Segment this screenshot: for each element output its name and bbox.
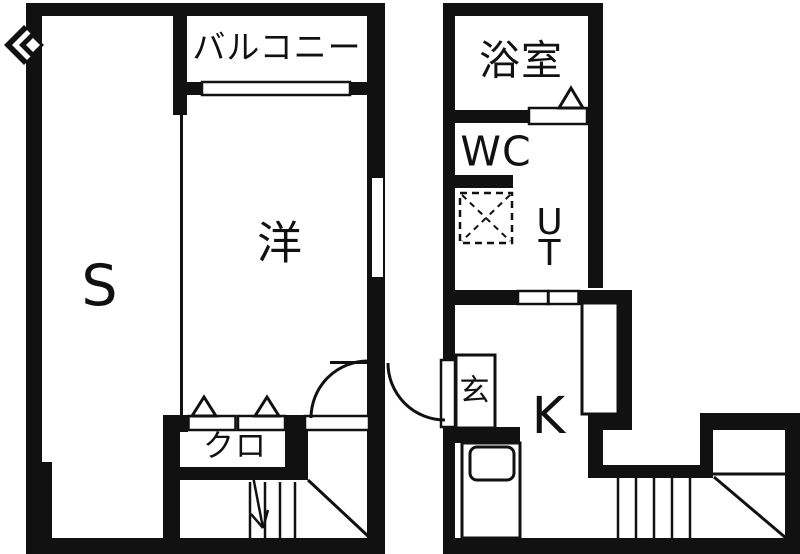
symbols xyxy=(4,25,786,538)
room-label-western-room: 洋 xyxy=(257,219,303,266)
wall-stair-tread-top xyxy=(588,465,712,478)
floor-plan: バルコニー S 洋 クロ 浴室 WC UT 玄 K xyxy=(0,0,800,554)
room-label-balcony: バルコニー xyxy=(192,31,361,66)
folding-door-triangle-closet-right xyxy=(255,397,279,416)
wall-left-unit-west-upper xyxy=(26,3,42,462)
wall-left-unit-bottom xyxy=(26,538,385,554)
room-label-closet: クロ xyxy=(203,431,267,464)
folding-door-triangle-closet-left xyxy=(192,397,216,416)
partition-s-western xyxy=(180,115,183,417)
wall-balcony-divider xyxy=(173,3,187,115)
wall-bath-bottom xyxy=(443,110,530,123)
wall-closet-bottom xyxy=(163,467,308,480)
wall-balcony-sill-left xyxy=(187,82,202,95)
wall-wc-bottom xyxy=(443,175,513,188)
entrance-door-leaf xyxy=(441,360,455,427)
kitchen-sink xyxy=(470,447,514,480)
room-label-utility: UT xyxy=(532,207,568,269)
wall-right-unit-top xyxy=(443,3,603,16)
western-room-window xyxy=(372,178,383,277)
bath-sliding-door xyxy=(529,108,587,124)
ut-sliding-door-right xyxy=(549,291,579,304)
wall-right-unit-east-upper xyxy=(588,3,603,288)
room-label-storage: S xyxy=(81,257,118,317)
room-label-entrance: 玄 xyxy=(460,375,491,407)
wall-stair-step xyxy=(588,413,632,430)
room-label-kitchen: K xyxy=(532,390,566,444)
western-room-door-swing-arc xyxy=(311,361,368,418)
balcony-window xyxy=(202,82,350,95)
wall-left-unit-top xyxy=(26,3,385,16)
wall-landing-east xyxy=(785,413,800,554)
folding-door-triangle-bath xyxy=(559,88,583,108)
walls xyxy=(26,3,800,554)
room-label-toilet: WC xyxy=(460,130,531,173)
entrance-door-swing-arc xyxy=(388,363,445,420)
wall-balcony-sill-right xyxy=(350,82,367,95)
wall-right-unit-bottom xyxy=(443,538,800,554)
room-label-bathroom: 浴室 xyxy=(479,39,563,82)
stair-winder-right xyxy=(714,477,786,538)
western-room-door-threshold xyxy=(305,416,369,430)
ut-sliding-door-left xyxy=(518,291,548,304)
wall-right-unit-west xyxy=(443,3,455,538)
stair-winder-left xyxy=(308,480,369,537)
floorplan-graphic xyxy=(0,0,800,554)
staircase-right xyxy=(618,478,690,538)
kitchen-stair-door xyxy=(582,303,618,414)
